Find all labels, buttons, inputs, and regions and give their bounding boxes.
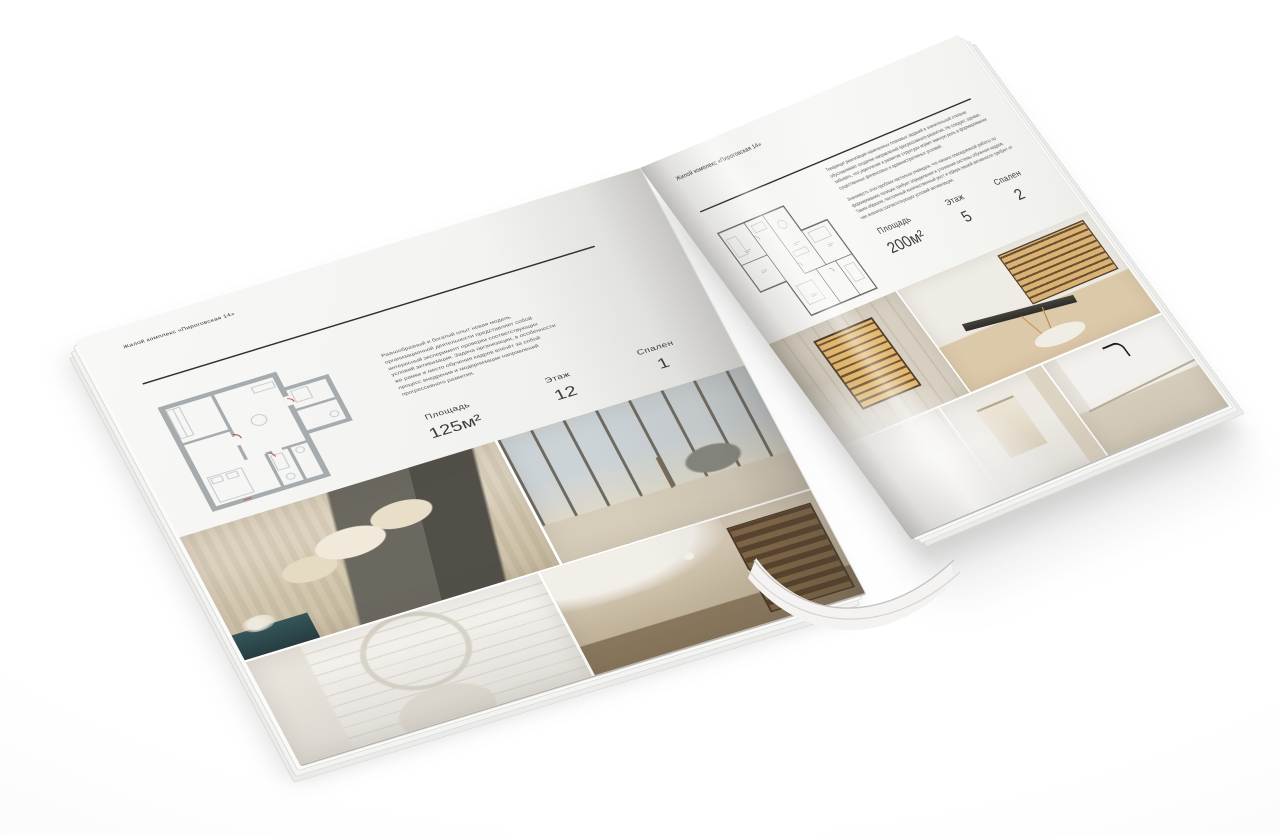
spec-bedrooms: Спален 1 (623, 335, 698, 380)
spec-floor: Этаж 12 (527, 366, 599, 410)
side-table (656, 457, 674, 487)
spec-floor: Этаж 5 (934, 188, 990, 232)
spec-area: Площадь 125м² (408, 396, 497, 446)
spec-bedrooms: Спален 2 (984, 165, 1047, 212)
spec-area: Площадь 200м² (866, 210, 937, 260)
table-leg (1021, 316, 1044, 335)
brochure-mockup-stage: Жилой комплекс «Пироговская 14» (0, 0, 1280, 835)
left-page-header: Жилой комплекс «Пироговская 14» (122, 311, 236, 349)
right-page-header: Жилой комплекс «Пироговская 14» (674, 141, 763, 182)
